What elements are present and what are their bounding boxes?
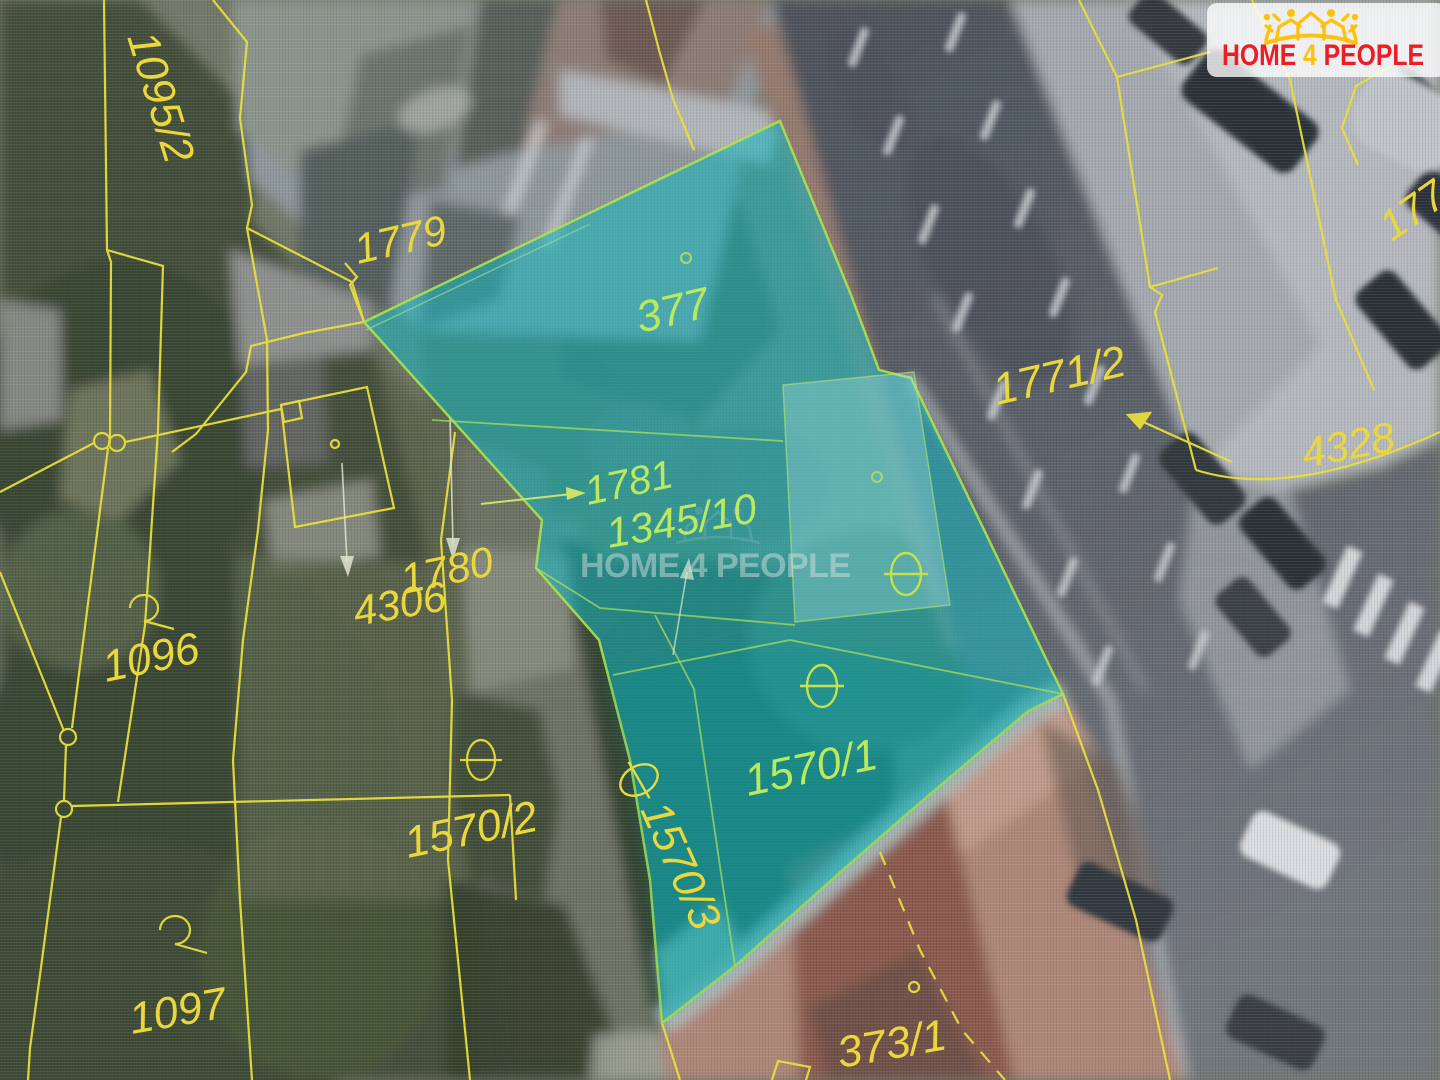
svg-text:HOME 4 PEOPLE: HOME 4 PEOPLE <box>580 547 852 585</box>
svg-text:HOME 4 PEOPLE: HOME 4 PEOPLE <box>1222 39 1424 72</box>
